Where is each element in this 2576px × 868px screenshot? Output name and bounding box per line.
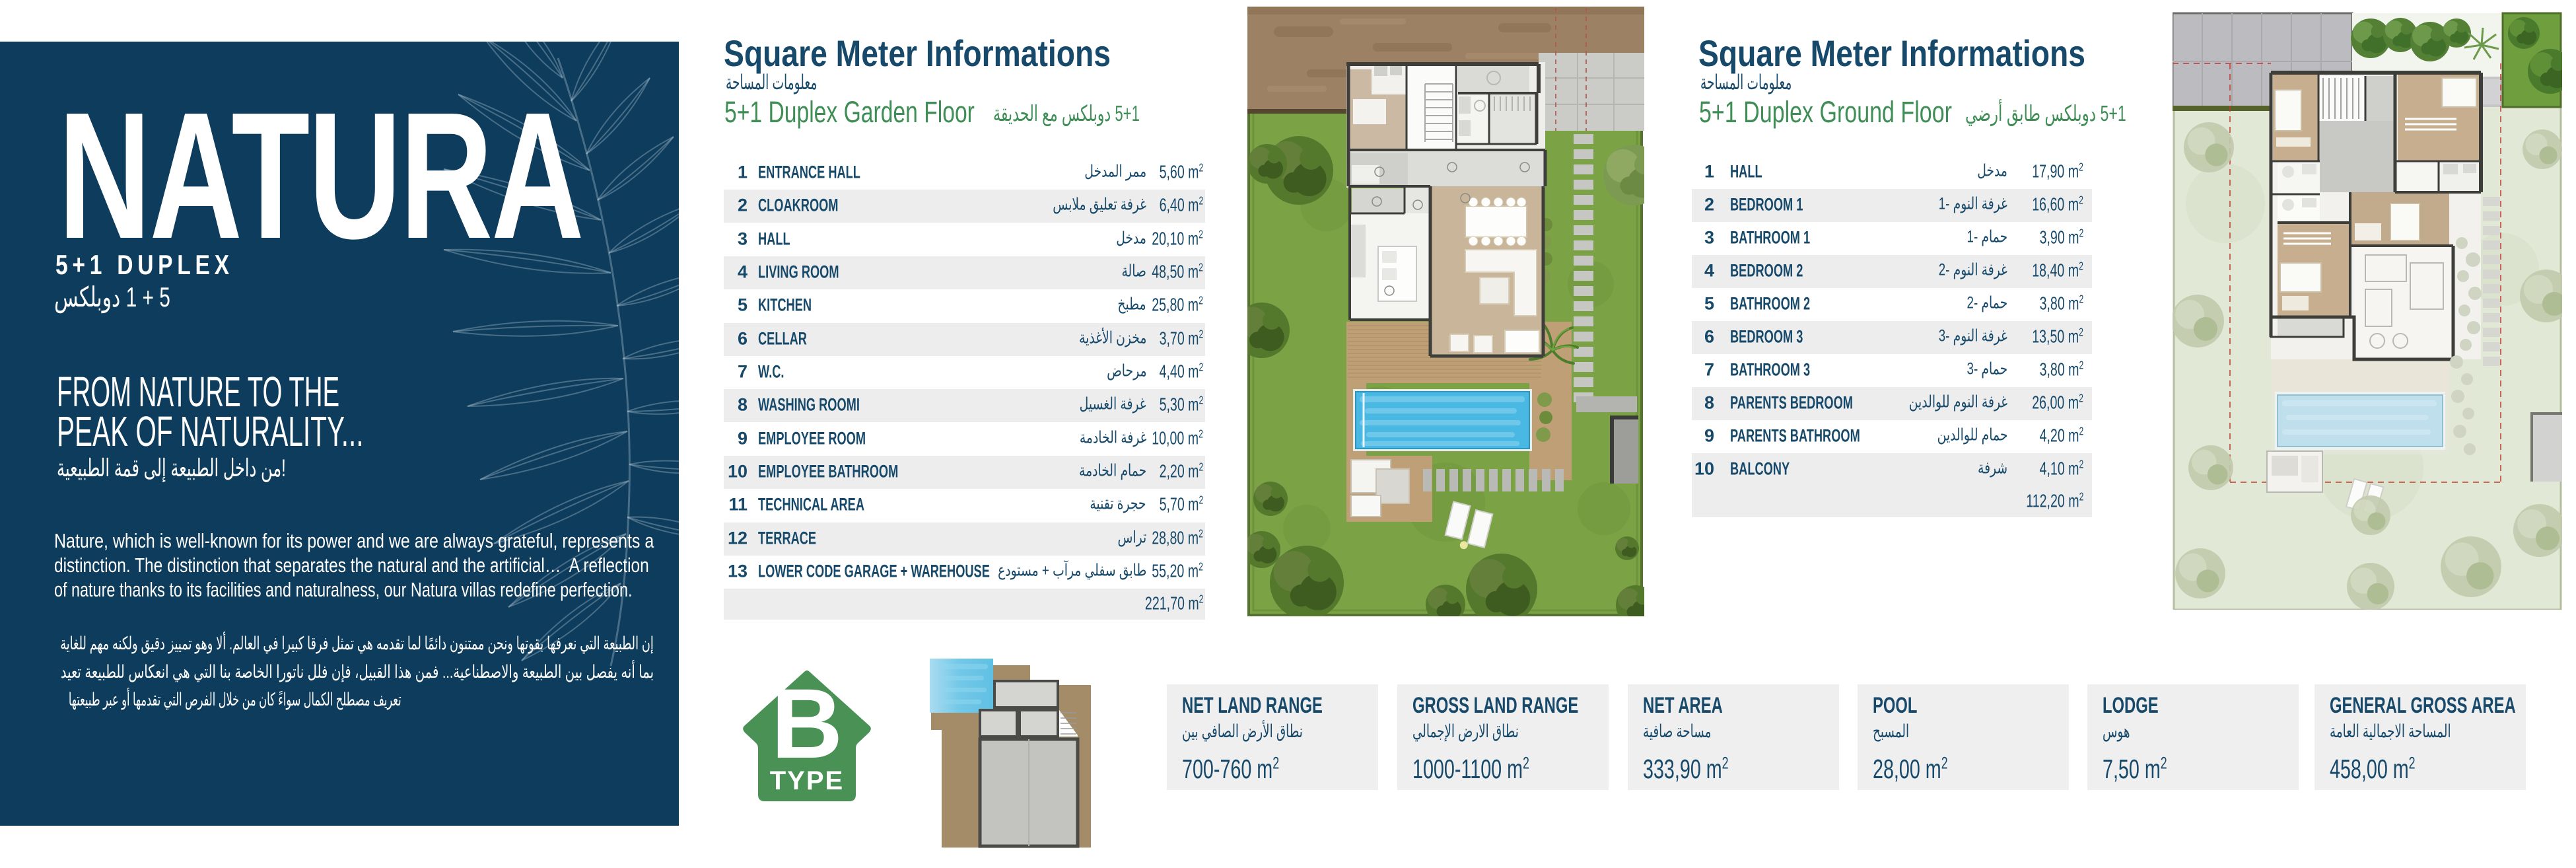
svg-text:B: B [771,670,843,779]
svg-text:TYPE: TYPE [770,766,844,795]
